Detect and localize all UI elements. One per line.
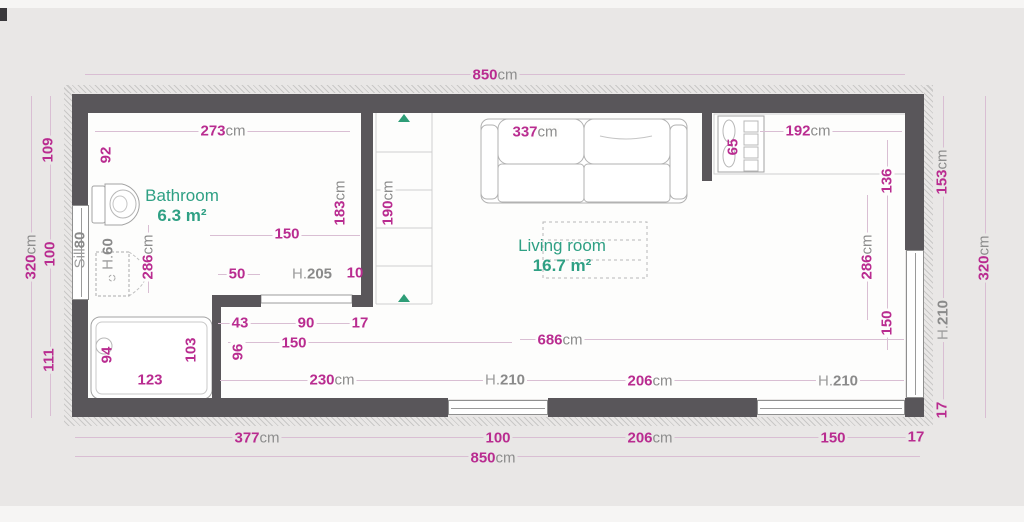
dimension-label: 206cm (625, 374, 674, 389)
dimension-label: 153cm (935, 147, 950, 196)
reference-label: H.210 (816, 374, 860, 389)
dimension-label: 17 (350, 316, 371, 331)
dimension-label: 94 (100, 345, 115, 366)
dimension-label: 192cm (783, 124, 832, 139)
dimension-label: 111 (42, 346, 57, 373)
room-label-bathroom: Bathroom 6.3 m² (145, 186, 219, 226)
dimension-label: 10 (345, 266, 366, 281)
dimension-label: 50 (227, 267, 248, 282)
dimension-label: 96 (231, 342, 246, 363)
dimension-label: 377cm (232, 431, 281, 446)
dimension-label: 183cm (333, 178, 348, 227)
room-name: Bathroom (145, 186, 219, 206)
dimension-label: 65 (726, 137, 741, 158)
floorplan-viewer: 850cm273cm337cm192cm1099265136153cm320cm… (0, 0, 1024, 522)
room-name: Living room (518, 236, 606, 256)
dimension-label: 206cm (625, 431, 674, 446)
dimension-label: 43 (230, 316, 251, 331)
dimension-label: 92 (99, 145, 114, 166)
dimension-label: 850cm (470, 68, 519, 83)
dimension-label: 320cm (977, 233, 992, 282)
room-area: 6.3 m² (145, 206, 219, 226)
dimension-label: 150 (880, 308, 895, 337)
reference-label: H.60 (101, 236, 116, 272)
dimension-label: 100 (43, 239, 58, 268)
dimension-label: 686cm (535, 333, 584, 348)
dimension-label: 150 (818, 431, 847, 446)
dimension-label: 90 (296, 316, 317, 331)
dimension-label: 273cm (198, 124, 247, 139)
dimension-label: 17 (935, 400, 950, 421)
dimension-label: 190cm (381, 178, 396, 227)
dimension-label: 286cm (141, 232, 156, 281)
dimension-label: 150 (272, 227, 301, 242)
dimension-label: 320cm (24, 232, 39, 281)
dimension-label: 136 (880, 166, 895, 195)
reference-label: H.210 (483, 373, 527, 388)
dimension-label: 100 (483, 431, 512, 446)
reference-label: H.205 (290, 267, 334, 282)
dimension-label: 17 (906, 430, 927, 445)
reference-label: Sill80 (73, 230, 88, 271)
labels-layer: 850cm273cm337cm192cm1099265136153cm320cm… (0, 0, 1024, 522)
dimension-label: 286cm (860, 232, 875, 281)
reference-label: H.210 (936, 298, 951, 342)
dimension-label: 850cm (468, 451, 517, 466)
room-area: 16.7 m² (518, 256, 606, 276)
dimension-label: 103 (184, 335, 199, 364)
dimension-label: 123 (135, 373, 164, 388)
dimension-label: 109 (41, 135, 56, 164)
room-label-living-room: Living room 16.7 m² (518, 236, 606, 276)
dimension-label: 150 (279, 336, 308, 351)
dimension-label: 230cm (307, 373, 356, 388)
dimension-label: 337cm (510, 125, 559, 140)
